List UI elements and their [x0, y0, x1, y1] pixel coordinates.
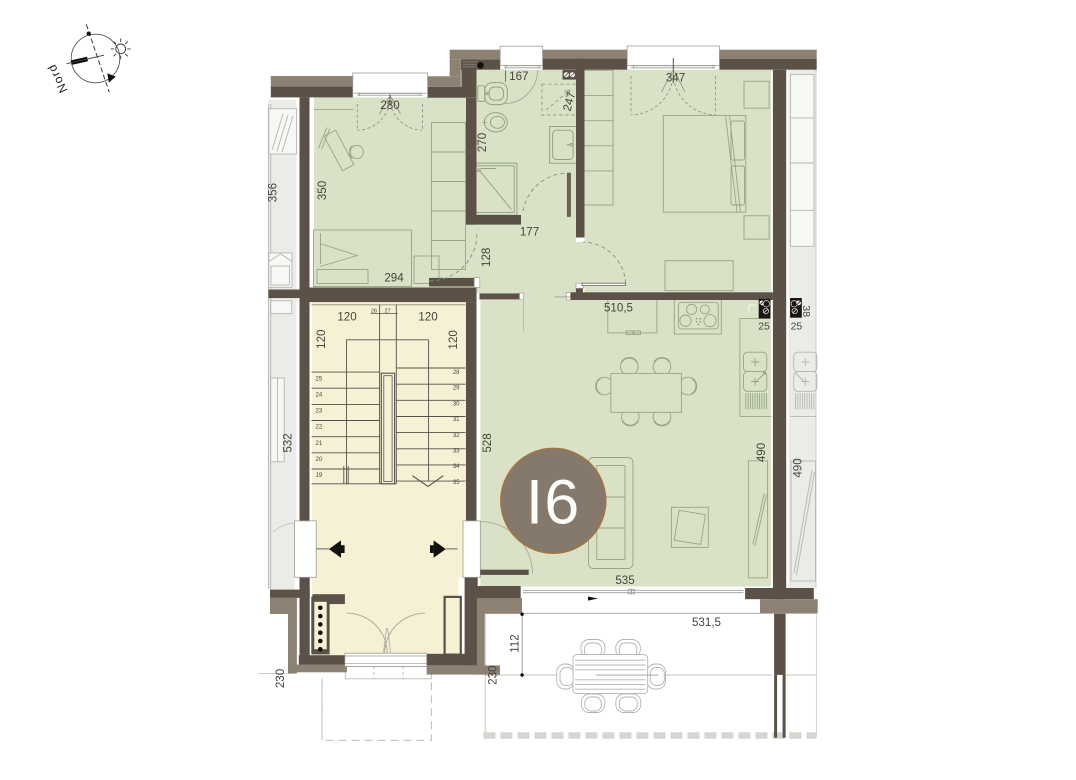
svg-text:23: 23: [316, 409, 323, 415]
svg-text:21: 21: [316, 441, 323, 447]
svg-text:528: 528: [481, 433, 494, 452]
svg-text:24: 24: [316, 392, 323, 398]
svg-text:26: 26: [371, 309, 377, 315]
svg-text:22: 22: [316, 425, 323, 431]
svg-text:120: 120: [337, 310, 356, 323]
svg-text:32: 32: [453, 433, 460, 439]
svg-text:20: 20: [316, 457, 323, 463]
svg-text:167: 167: [509, 70, 528, 83]
svg-text:25: 25: [758, 322, 770, 333]
svg-text:I6: I6: [526, 468, 581, 538]
svg-text:230: 230: [274, 669, 287, 688]
svg-text:19: 19: [316, 473, 323, 479]
svg-text:29: 29: [453, 386, 460, 392]
svg-text:112: 112: [509, 634, 522, 652]
svg-text:30: 30: [453, 401, 460, 407]
svg-text:347: 347: [666, 72, 685, 85]
svg-text:120: 120: [447, 330, 460, 349]
svg-text:350: 350: [316, 181, 329, 200]
svg-text:120: 120: [315, 330, 328, 349]
svg-text:490: 490: [755, 443, 768, 462]
svg-text:31: 31: [453, 417, 460, 423]
svg-text:27: 27: [384, 309, 390, 315]
svg-text:270: 270: [476, 133, 489, 152]
svg-text:531,5: 531,5: [692, 616, 721, 629]
svg-text:25: 25: [791, 322, 803, 333]
svg-text:33: 33: [453, 449, 460, 455]
svg-text:177: 177: [520, 226, 539, 239]
svg-text:510,5: 510,5: [604, 301, 633, 314]
svg-text:532: 532: [281, 433, 294, 452]
svg-text:38: 38: [800, 305, 811, 317]
svg-text:356: 356: [267, 183, 280, 202]
svg-text:25: 25: [316, 376, 323, 382]
svg-text:35: 35: [453, 480, 460, 486]
svg-text:294: 294: [384, 272, 404, 285]
svg-text:490: 490: [792, 458, 805, 477]
svg-text:280: 280: [380, 99, 399, 112]
svg-text:34: 34: [453, 464, 460, 470]
svg-text:535: 535: [615, 574, 634, 587]
svg-text:28: 28: [453, 370, 460, 376]
svg-text:230: 230: [486, 666, 499, 685]
svg-text:120: 120: [418, 310, 437, 323]
svg-text:128: 128: [480, 248, 493, 267]
